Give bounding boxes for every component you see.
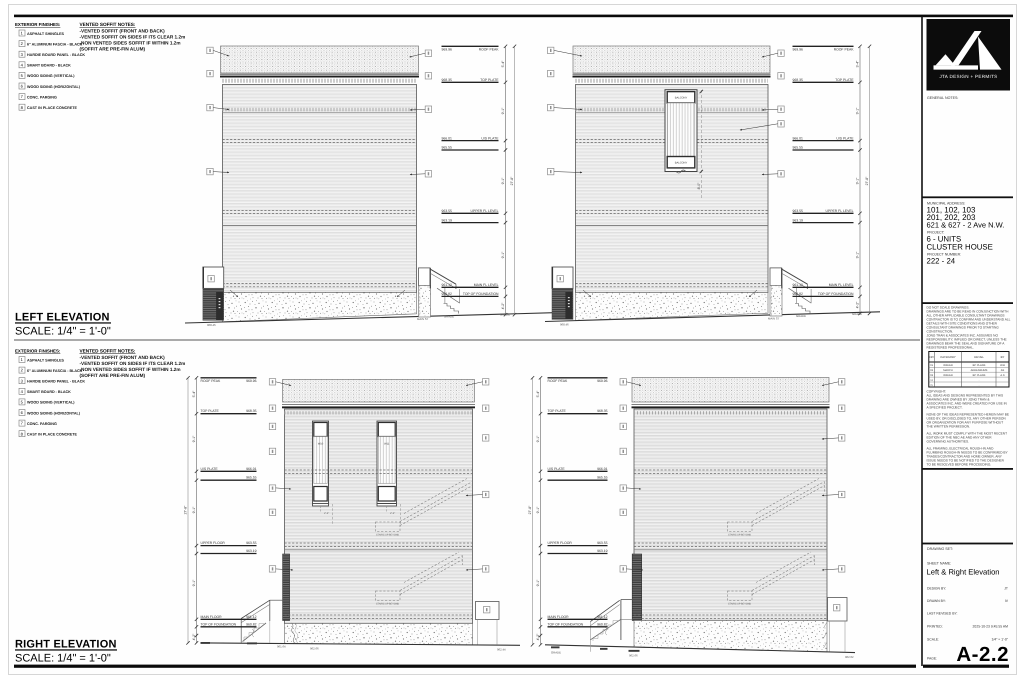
svg-text:961.64: 961.64 [277, 645, 286, 649]
svg-text:962.44: 962.44 [497, 648, 506, 652]
svg-text:-NON VENTED SIDES SOFFIT IF WI: -NON VENTED SIDES SOFFIT IF WITHIN 1.2m [80, 40, 181, 45]
svg-text:STAIRS UP BEYOND: STAIRS UP BEYOND [728, 534, 751, 537]
svg-text:-: - [979, 384, 980, 387]
svg-text:-VENTED SOFFIT ON SIDES IF ITS: -VENTED SOFFIT ON SIDES IF ITS CLEAR 1.2… [80, 361, 186, 366]
svg-text:9'-1": 9'-1" [192, 579, 196, 587]
svg-text:VENTED SOFFIT NOTES:: VENTED SOFFIT NOTES: [80, 22, 136, 27]
svg-text:REGISTERED PROFESSIONAL.: REGISTERED PROFESSIONAL. [927, 345, 974, 349]
svg-text:U/S PLATE: U/S PLATE [836, 136, 854, 140]
svg-text:MAIN ST: MAIN ST [768, 317, 780, 321]
svg-text:U/S PLATE: U/S PLATE [548, 467, 566, 471]
svg-text:966.01: 966.01 [442, 136, 452, 140]
svg-text:ROOF PEAK: ROOF PEAK [834, 48, 855, 52]
svg-text:ADDENDUMS: ADDENDUMS [971, 369, 988, 372]
svg-text:27'-8": 27'-8" [528, 505, 532, 514]
svg-text:9'-1": 9'-1" [536, 435, 540, 443]
svg-text:A-2.2: A-2.2 [956, 643, 1009, 666]
svg-text:GRADE: GRADE [796, 314, 806, 318]
svg-text:W10: W10 [318, 443, 324, 446]
svg-text:9'-1": 9'-1" [501, 177, 505, 185]
svg-text:960.82: 960.82 [793, 292, 803, 296]
svg-text:TOP PLATE: TOP PLATE [835, 78, 854, 82]
svg-text:ASPHALT SHINGLES: ASPHALT SHINGLES [27, 358, 65, 362]
svg-text:961.12: 961.12 [793, 283, 803, 287]
svg-text:(SOFFIT ARE PRE-FIN ALUM): (SOFFIT ARE PRE-FIN ALUM) [80, 46, 146, 51]
svg-text:DESIGN BY:: DESIGN BY: [927, 587, 946, 591]
svg-text:MAIN FLOOR: MAIN FLOOR [201, 615, 223, 619]
svg-text:THE WRITTEN PERMISSION.: THE WRITTEN PERMISSION. [927, 425, 971, 429]
svg-text:VENTED SOFFIT NOTES:: VENTED SOFFIT NOTES: [80, 349, 136, 354]
svg-text:963.55: 963.55 [793, 209, 803, 213]
svg-text:965.55: 965.55 [597, 476, 607, 480]
svg-text:JTA DESIGN + PERMITS: JTA DESIGN + PERMITS [939, 74, 997, 79]
svg-text:TOP OF FOUNDATION: TOP OF FOUNDATION [463, 292, 499, 296]
svg-text:SHEET NAME:: SHEET NAME: [927, 562, 951, 566]
svg-text:GRADE: GRADE [500, 313, 510, 317]
svg-text:968.35: 968.35 [246, 409, 256, 413]
svg-text:EXTERIOR FINISHES:: EXTERIOR FINISHES: [15, 22, 61, 27]
svg-text:963.55: 963.55 [246, 541, 256, 545]
svg-text:965.55: 965.55 [442, 146, 452, 150]
svg-text:27'-8": 27'-8" [510, 176, 514, 185]
svg-text:U/S PLATE: U/S PLATE [481, 136, 499, 140]
svg-text:MAIN FL LEVEL: MAIN FL LEVEL [474, 283, 499, 287]
svg-text:8'-0": 8'-0" [697, 182, 701, 190]
svg-text:UPPER FLOOR: UPPER FLOOR [548, 541, 573, 545]
svg-text:UPPER FL LEVEL: UPPER FL LEVEL [826, 209, 854, 213]
svg-text:TOP PLATE: TOP PLATE [480, 78, 499, 82]
svg-text:968.35: 968.35 [597, 409, 607, 413]
svg-text:9'-1": 9'-1" [192, 435, 196, 443]
svg-text:-VENTED SOFFIT (FRONT AND BACK: -VENTED SOFFIT (FRONT AND BACK) [80, 28, 166, 33]
svg-text:BP PLANS: BP PLANS [973, 374, 986, 377]
svg-text:2'-6": 2'-6" [324, 512, 329, 515]
svg-text:TOP PLATE: TOP PLATE [201, 409, 220, 413]
svg-text:962.66: 962.66 [629, 654, 638, 658]
svg-text:5'-4": 5'-4" [501, 60, 505, 68]
svg-text:9'-1": 9'-1" [856, 177, 860, 185]
svg-text:DRAWN BY:: DRAWN BY: [927, 599, 946, 603]
svg-text:CAST IN PLACE CONCRETE: CAST IN PLACE CONCRETE [27, 106, 78, 110]
svg-text:963.19: 963.19 [597, 549, 607, 553]
svg-text:BALCONY: BALCONY [675, 162, 688, 165]
svg-text:CONC. PARGING: CONC. PARGING [27, 95, 57, 99]
svg-text:960.82: 960.82 [442, 292, 452, 296]
svg-text:2025-10-23 9:45:55 AM: 2025-10-23 9:45:55 AM [973, 625, 1009, 629]
svg-text:WOOD SIDING (HORIZONTAL): WOOD SIDING (HORIZONTAL) [27, 85, 81, 89]
svg-text:EXTERIOR FINISHES:: EXTERIOR FINISHES: [15, 349, 61, 354]
svg-text:GRADE: GRADE [852, 312, 862, 316]
svg-text:968.35: 968.35 [442, 78, 452, 82]
svg-text:WOOD SIDING (VERTICAL): WOOD SIDING (VERTICAL) [27, 74, 75, 78]
svg-text:PRINTED:: PRINTED: [927, 625, 943, 629]
svg-text:SMART BOARD - BLACK: SMART BOARD - BLACK [27, 64, 71, 68]
svg-text:LEFT ELEVATION: LEFT ELEVATION [15, 312, 110, 324]
svg-text:TOP OF FOUNDATION: TOP OF FOUNDATION [548, 622, 584, 626]
svg-text:RIGHT ELEVATION: RIGHT ELEVATION [15, 639, 117, 651]
svg-text:UPPER FL LEVEL: UPPER FL LEVEL [471, 209, 499, 213]
svg-text:MAIN ST: MAIN ST [417, 317, 429, 321]
svg-text:DETAIL: DETAIL [974, 355, 984, 359]
svg-text:968.46: 968.46 [207, 323, 216, 327]
svg-text:4'-2": 4'-2" [192, 633, 196, 641]
svg-text:WOOD SIDING (VERTICAL): WOOD SIDING (VERTICAL) [27, 401, 75, 405]
svg-text:963.19: 963.19 [793, 218, 803, 222]
svg-text:222 - 24: 222 - 24 [927, 257, 956, 266]
svg-text:9'-1": 9'-1" [856, 251, 860, 259]
svg-text:GRADE: GRADE [551, 651, 561, 655]
svg-text:27'-8": 27'-8" [865, 176, 869, 185]
svg-text:960.82: 960.82 [597, 622, 607, 626]
svg-text:962.66: 962.66 [310, 647, 319, 651]
svg-text:965.55: 965.55 [246, 476, 256, 480]
svg-text:966.01: 966.01 [793, 136, 803, 140]
svg-text:4'-2": 4'-2" [536, 633, 540, 641]
svg-text:LAST REVISED BY:: LAST REVISED BY: [927, 612, 958, 616]
svg-text:4'-2": 4'-2" [501, 302, 505, 310]
svg-text:963.19: 963.19 [442, 218, 452, 222]
svg-text:968.35: 968.35 [793, 78, 803, 82]
svg-text:9'-1": 9'-1" [856, 107, 860, 115]
svg-text:969.96: 969.96 [597, 379, 607, 383]
svg-text:MAIN FLOOR: MAIN FLOOR [548, 615, 570, 619]
svg-text:ROOF PEAK: ROOF PEAK [548, 379, 569, 383]
svg-text:ISSUED: ISSUED [943, 374, 953, 377]
svg-text:5'-4": 5'-4" [856, 60, 860, 68]
svg-text:-VENTED SOFFIT ON SIDES IF ITS: -VENTED SOFFIT ON SIDES IF ITS CLEAR 1.2… [80, 34, 186, 39]
svg-text:1/4" = 1'-0": 1/4" = 1'-0" [991, 638, 1008, 642]
svg-text:9'-1": 9'-1" [192, 506, 196, 514]
svg-text:(SOFFIT ARE PRE-FIN ALUM): (SOFFIT ARE PRE-FIN ALUM) [80, 373, 146, 378]
svg-text:ISSUED: ISSUED [943, 364, 953, 367]
svg-text:962.02: 962.02 [845, 655, 854, 659]
svg-text:HARDIE BOARD PANEL - BLACK: HARDIE BOARD PANEL - BLACK [27, 380, 85, 384]
svg-text:SMART BOARD - BLACK: SMART BOARD - BLACK [27, 390, 71, 394]
svg-text:ROOF PEAK: ROOF PEAK [479, 48, 500, 52]
svg-text:U/S PLATE: U/S PLATE [201, 467, 219, 471]
svg-text:9'-1": 9'-1" [501, 107, 505, 115]
svg-text:4'-2": 4'-2" [856, 301, 860, 309]
svg-text:BP PLANS: BP PLANS [973, 364, 986, 367]
svg-text:TO BE RESOLVED BEFORE PROCEEDI: TO BE RESOLVED BEFORE PROCEEDING. [927, 463, 992, 467]
svg-text:963.55: 963.55 [597, 541, 607, 545]
svg-text:5'-4": 5'-4" [536, 390, 540, 398]
svg-text:969.96: 969.96 [793, 48, 803, 52]
svg-text:SCALE: 1/4" = 1'-0": SCALE: 1/4" = 1'-0" [15, 326, 111, 338]
svg-text:-NON VENTED SIDES SOFFIT IF WI: -NON VENTED SIDES SOFFIT IF WITHIN 1.2m [80, 367, 181, 372]
svg-text:961.12: 961.12 [442, 283, 452, 287]
svg-text:CONC. PARGING: CONC. PARGING [27, 422, 57, 426]
svg-text:SCALE:: SCALE: [927, 638, 939, 642]
svg-text:MAIN FL LEVEL: MAIN FL LEVEL [829, 283, 854, 287]
svg-text:Left & Right Elevation: Left & Right Elevation [927, 568, 1000, 577]
svg-text:W.B: W.B [1000, 364, 1005, 367]
svg-text:STAIRS UP BEYOND: STAIRS UP BEYOND [728, 603, 751, 606]
svg-text:JT: JT [1004, 587, 1008, 591]
svg-text:9'-1": 9'-1" [501, 251, 505, 259]
svg-text:968.46: 968.46 [560, 323, 569, 327]
svg-text:AS: AS [1001, 369, 1005, 372]
svg-text:ROOF PEAK: ROOF PEAK [201, 379, 222, 383]
svg-text:SCALE: 1/4" = 1'-0": SCALE: 1/4" = 1'-0" [15, 653, 111, 665]
svg-text:GENERAL NOTES:: GENERAL NOTES: [927, 96, 958, 100]
svg-text:MARCH: MARCH [943, 369, 953, 372]
svg-text:961.12: 961.12 [597, 615, 607, 619]
svg-text:-VENTED SOFFIT (FRONT AND BACK: -VENTED SOFFIT (FRONT AND BACK) [80, 355, 166, 360]
svg-text:966.01: 966.01 [597, 467, 607, 471]
svg-text:BALCONY: BALCONY [675, 97, 688, 100]
svg-text:965.55: 965.55 [793, 146, 803, 150]
svg-text:969.96: 969.96 [442, 48, 452, 52]
svg-text:TOP OF FOUNDATION: TOP OF FOUNDATION [201, 622, 237, 626]
svg-text:5'-4": 5'-4" [192, 390, 196, 398]
svg-text:961.12: 961.12 [246, 615, 256, 619]
svg-text:963.55: 963.55 [442, 209, 452, 213]
svg-text:A SPECIFIED PROJECT.: A SPECIFIED PROJECT. [927, 406, 963, 410]
svg-text:TOP PLATE: TOP PLATE [548, 409, 567, 413]
svg-text:CATEGORY: CATEGORY [940, 355, 956, 359]
svg-text:WOOD SIDING (HORIZONTAL): WOOD SIDING (HORIZONTAL) [27, 411, 81, 415]
svg-text:DRAWING SET:: DRAWING SET: [927, 547, 953, 551]
svg-text:GOVERNING AUTHORITIES.: GOVERNING AUTHORITIES. [927, 440, 970, 444]
svg-text:HARDIE BOARD PANEL - BLACK: HARDIE BOARD PANEL - BLACK [27, 53, 85, 57]
svg-text:STAIRS UP BEYOND: STAIRS UP BEYOND [376, 603, 399, 606]
svg-text:27'-8": 27'-8" [184, 505, 188, 514]
svg-text:9'-1": 9'-1" [536, 506, 540, 514]
svg-text:969.96: 969.96 [246, 379, 256, 383]
svg-text:UPPER FLOOR: UPPER FLOOR [201, 541, 226, 545]
svg-text:2'-6": 2'-6" [390, 512, 395, 515]
svg-text:W11: W11 [384, 443, 390, 446]
svg-text:BY: BY [1001, 355, 1005, 359]
svg-text:-: - [979, 379, 980, 382]
svg-text:PAGE:: PAGE: [927, 657, 937, 661]
svg-text:CAST IN PLACE CONCRETE: CAST IN PLACE CONCRETE [27, 433, 78, 437]
svg-text:GRADE: GRADE [444, 315, 454, 319]
svg-text:ASPHALT SHINGLES: ASPHALT SHINGLES [27, 32, 65, 36]
svg-text:STAIRS UP BEYOND: STAIRS UP BEYOND [376, 534, 399, 537]
svg-text:TOP OF FOUNDATION: TOP OF FOUNDATION [818, 292, 854, 296]
svg-text:963.19: 963.19 [246, 549, 256, 553]
svg-text:6" ALUMINUM FASCIA - BLACK: 6" ALUMINUM FASCIA - BLACK [27, 369, 83, 373]
svg-text:966.01: 966.01 [246, 467, 256, 471]
svg-text:6" ALUMINUM FASCIA - BLACK: 6" ALUMINUM FASCIA - BLACK [27, 42, 83, 46]
svg-text:960.82: 960.82 [246, 622, 256, 626]
svg-text:CLUSTER HOUSE: CLUSTER HOUSE [927, 243, 993, 252]
svg-text:A.S: A.S [1000, 374, 1004, 377]
svg-text:621 & 627 - 2 Ave N.W.: 621 & 627 - 2 Ave N.W. [927, 221, 1005, 230]
svg-text:9'-1": 9'-1" [536, 579, 540, 587]
